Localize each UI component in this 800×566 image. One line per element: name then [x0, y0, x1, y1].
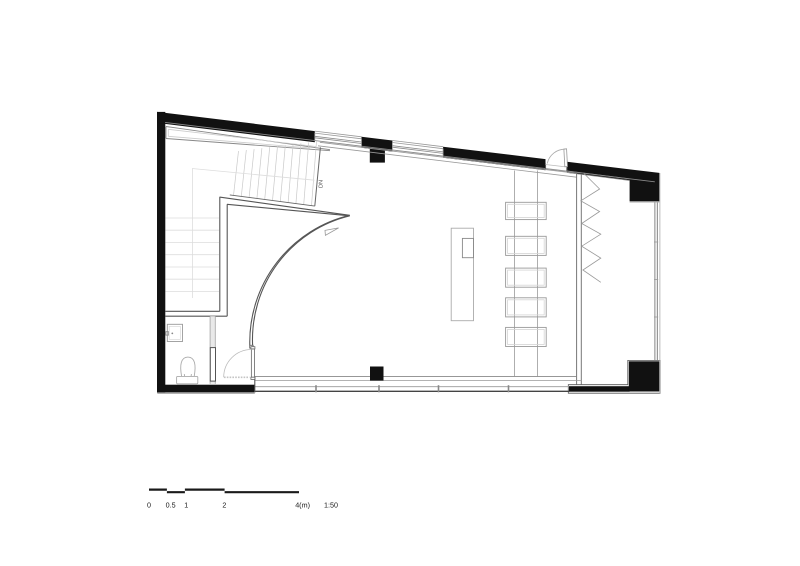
svg-text:0: 0	[147, 501, 151, 510]
svg-text:0.5: 0.5	[166, 501, 176, 510]
svg-text:1:50: 1:50	[324, 501, 338, 510]
svg-text:DN: DN	[318, 180, 324, 188]
svg-text:2: 2	[222, 501, 226, 510]
svg-text:4(m): 4(m)	[295, 501, 310, 510]
svg-text:1: 1	[184, 501, 188, 510]
